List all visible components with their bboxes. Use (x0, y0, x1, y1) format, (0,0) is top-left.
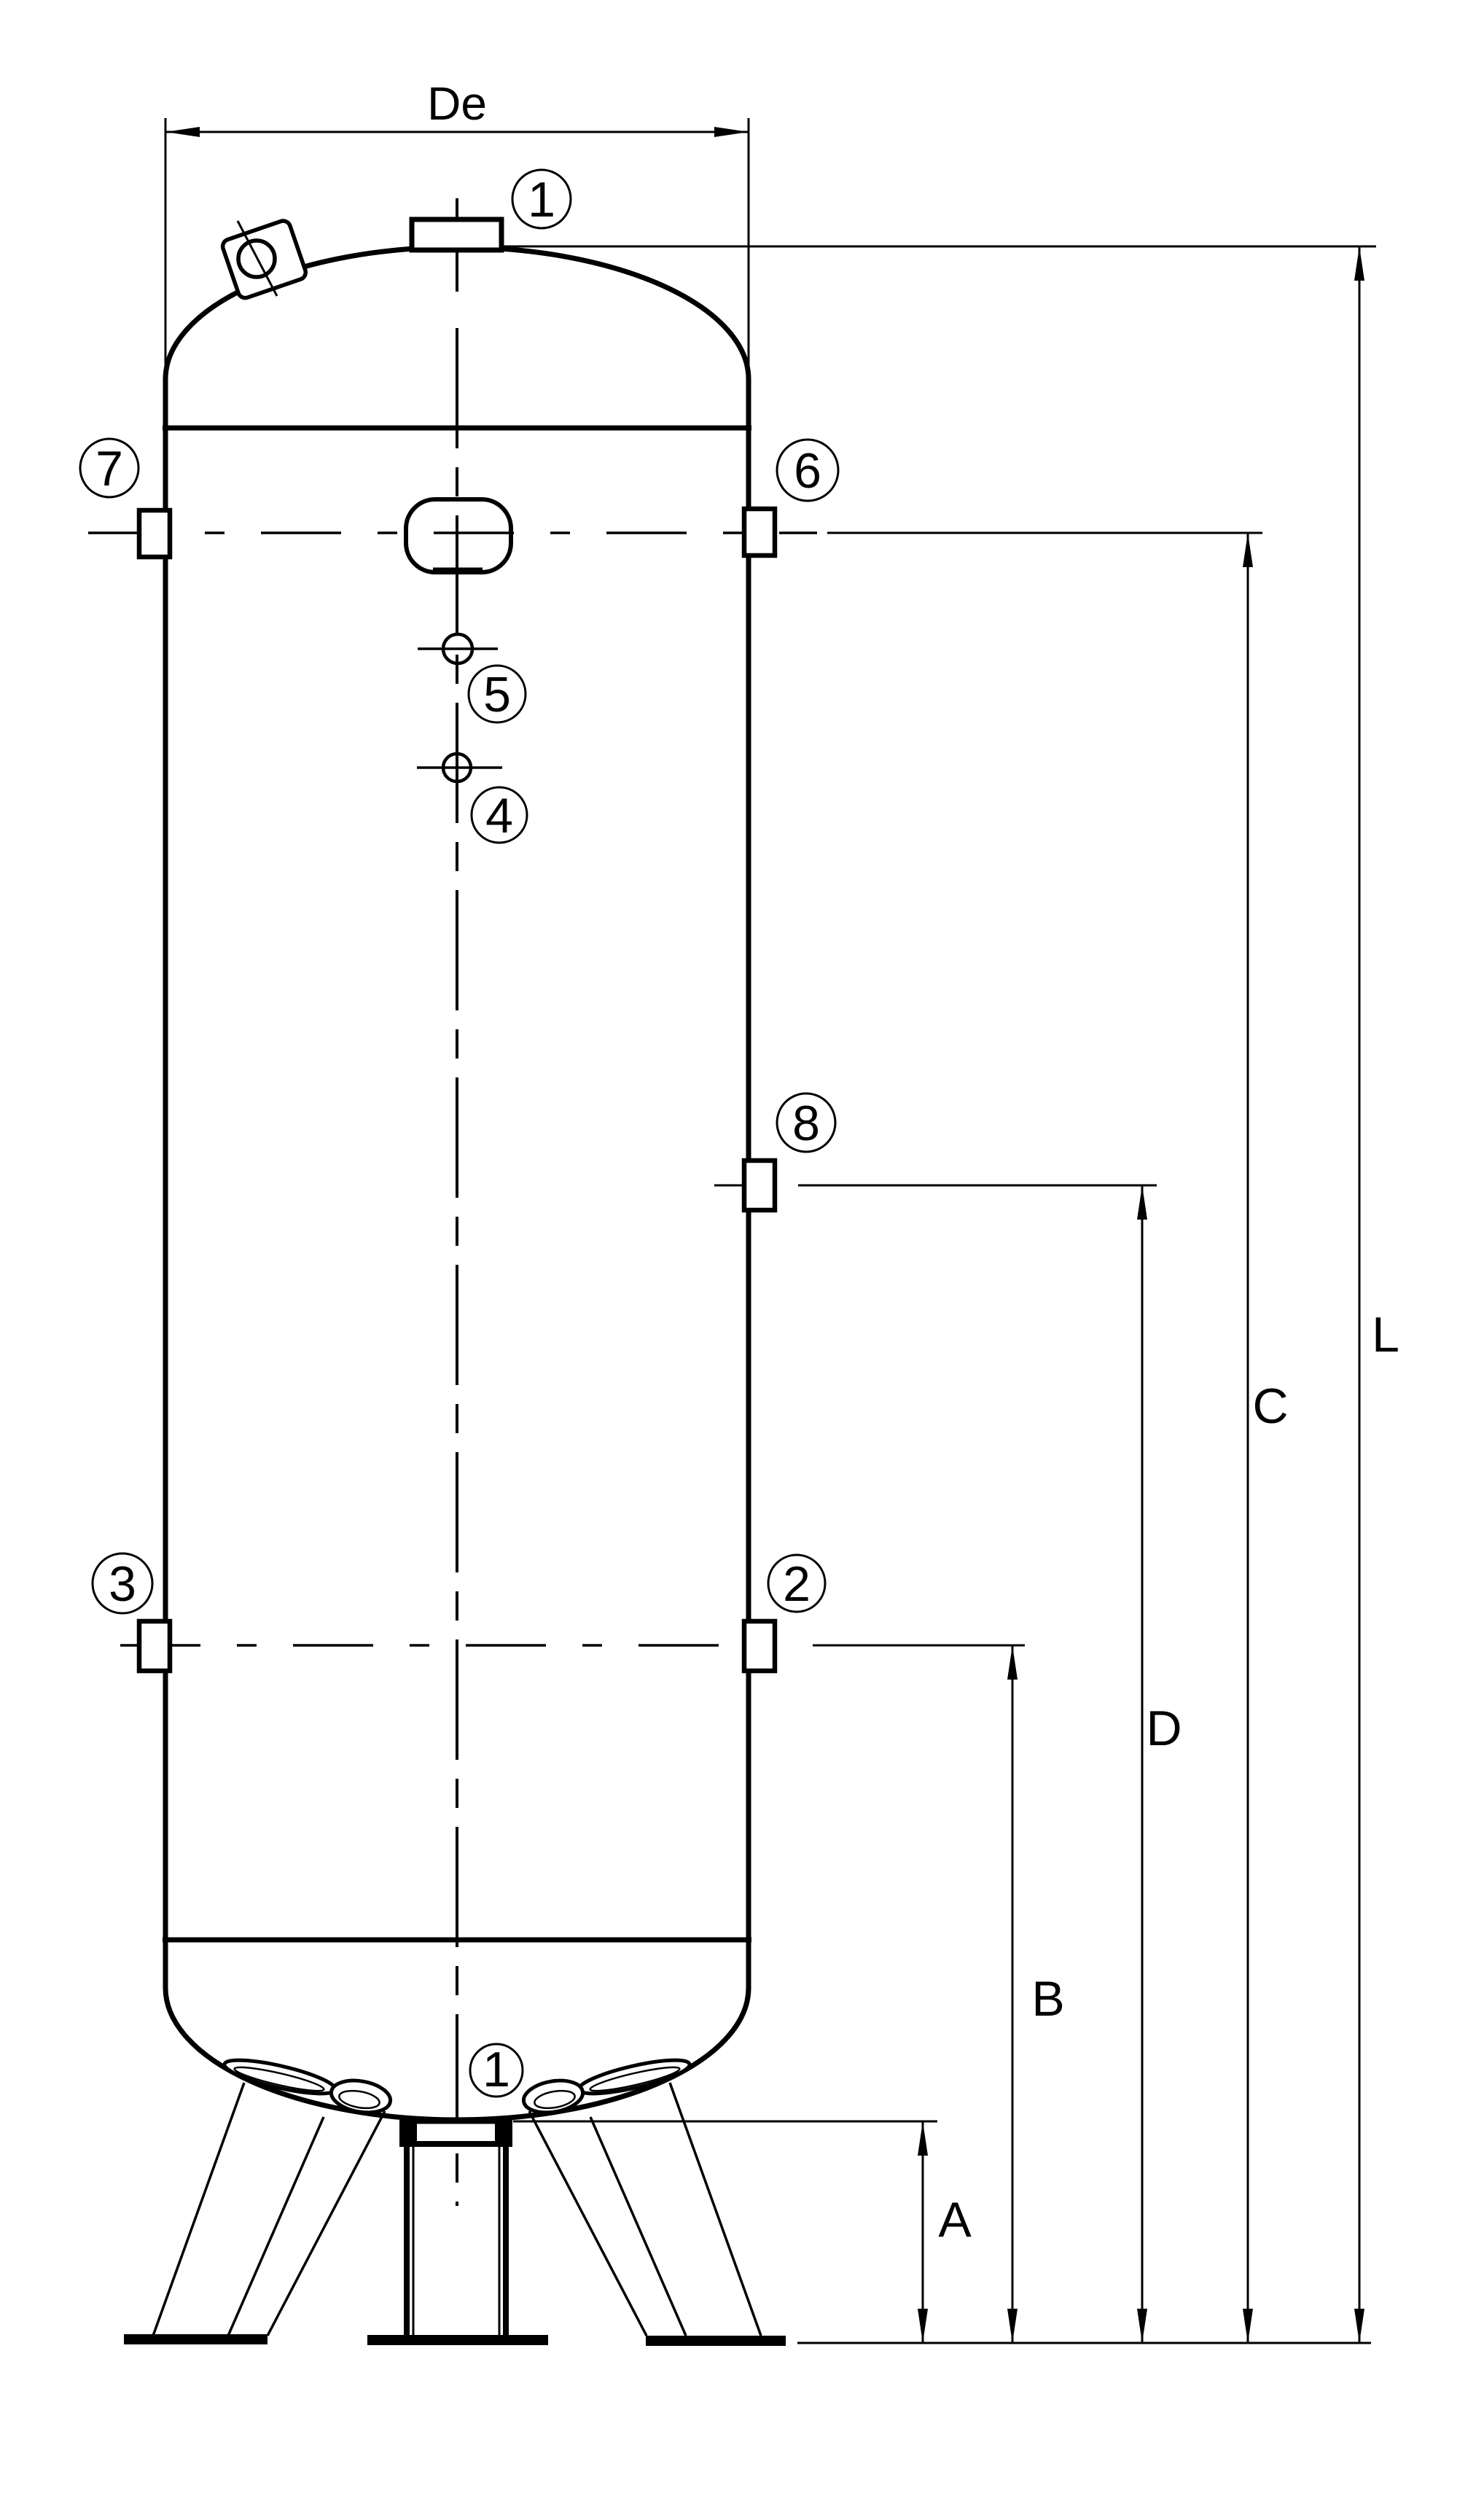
svg-text:2: 2 (783, 1556, 811, 1612)
svg-text:4: 4 (485, 788, 513, 843)
svg-text:3: 3 (109, 1556, 136, 1612)
svg-text:A: A (938, 2192, 972, 2247)
svg-text:De: De (427, 77, 487, 130)
svg-text:6: 6 (794, 443, 821, 499)
svg-text:1: 1 (528, 172, 555, 227)
svg-text:L: L (1372, 1307, 1399, 1362)
svg-text:7: 7 (95, 441, 123, 496)
svg-text:1: 1 (483, 2042, 510, 2097)
svg-text:D: D (1146, 1701, 1182, 1756)
svg-text:B: B (1031, 1971, 1064, 2027)
svg-text:8: 8 (792, 1096, 820, 1151)
svg-text:C: C (1252, 1379, 1288, 1434)
svg-text:5: 5 (483, 667, 511, 722)
